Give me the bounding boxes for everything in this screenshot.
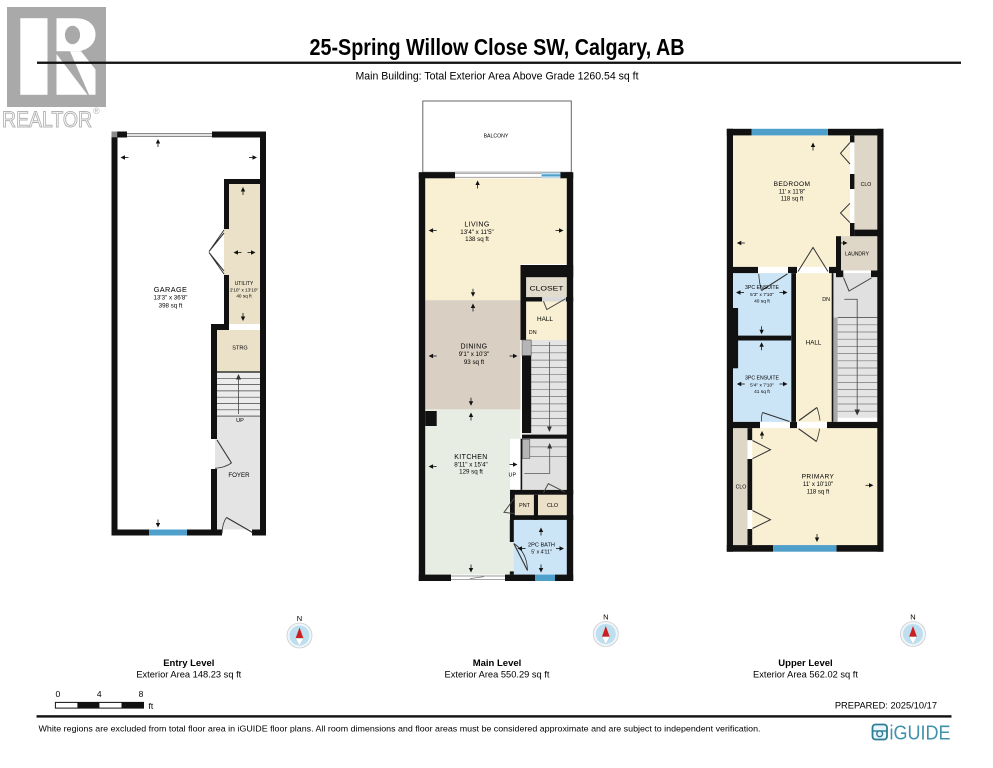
svg-text:UP: UP xyxy=(236,418,244,424)
svg-text:129 sq ft: 129 sq ft xyxy=(459,469,483,476)
svg-text:DN: DN xyxy=(822,297,830,303)
svg-text:40 sq ft: 40 sq ft xyxy=(236,294,252,299)
svg-text:5'3" x 7'10": 5'3" x 7'10" xyxy=(750,292,774,298)
svg-text:CLO: CLO xyxy=(861,182,872,188)
svg-text:13'3" x 36'8": 13'3" x 36'8" xyxy=(154,295,188,302)
svg-text:GARAGE: GARAGE xyxy=(154,285,188,294)
svg-text:2'10" x 13'10": 2'10" x 13'10" xyxy=(230,287,259,292)
svg-text:118 sq ft: 118 sq ft xyxy=(781,197,804,203)
svg-text:11' x 11'8": 11' x 11'8" xyxy=(779,189,806,195)
svg-text:3PC ENSUITE: 3PC ENSUITE xyxy=(745,285,780,291)
svg-text:Main Level: Main Level xyxy=(473,658,522,669)
svg-text:FOYER: FOYER xyxy=(228,472,250,479)
svg-text:8'11" x 15'4": 8'11" x 15'4" xyxy=(454,461,487,468)
svg-text:11' x 10'10": 11' x 10'10" xyxy=(803,482,833,488)
svg-text:41 sq ft: 41 sq ft xyxy=(754,389,770,395)
svg-text:2PC BATH: 2PC BATH xyxy=(528,543,555,549)
svg-text:BALCONY: BALCONY xyxy=(484,134,509,140)
svg-text:5' x 4'11": 5' x 4'11" xyxy=(531,549,552,555)
svg-text:93 sq ft: 93 sq ft xyxy=(464,359,485,366)
svg-text:iGUIDE: iGUIDE xyxy=(890,723,951,745)
svg-text:Entry Level: Entry Level xyxy=(163,658,214,669)
svg-text:40 sq ft: 40 sq ft xyxy=(754,299,770,305)
svg-text:KITCHEN: KITCHEN xyxy=(454,454,488,461)
svg-text:CLO: CLO xyxy=(547,503,558,509)
svg-text:White regions are excluded fro: White regions are excluded from total fl… xyxy=(39,724,761,734)
svg-text:Upper Level: Upper Level xyxy=(778,658,832,669)
svg-text:LIVING: LIVING xyxy=(464,222,489,229)
svg-text:PNT: PNT xyxy=(519,503,530,509)
svg-text:138 sq ft: 138 sq ft xyxy=(465,236,489,243)
svg-text:CLOSET: CLOSET xyxy=(530,286,564,293)
svg-text:HALL: HALL xyxy=(537,316,553,323)
svg-text:UTILITY: UTILITY xyxy=(235,281,254,287)
svg-text:REALTOR: REALTOR xyxy=(2,107,92,132)
svg-text:LAUNDRY: LAUNDRY xyxy=(845,252,869,258)
svg-text:DINING: DINING xyxy=(461,344,488,351)
svg-text:UP: UP xyxy=(509,472,517,478)
svg-text:9'1" x 10'3": 9'1" x 10'3" xyxy=(459,351,490,358)
svg-text:Main Building: Total Exterior: Main Building: Total Exterior Area Above… xyxy=(356,71,639,83)
svg-text:Exterior Area 562.02 sq ft: Exterior Area 562.02 sq ft xyxy=(753,670,858,680)
svg-text:STRG: STRG xyxy=(232,346,248,352)
svg-text:ft: ft xyxy=(149,701,154,711)
svg-text:CLO: CLO xyxy=(736,485,747,491)
svg-text:13'4" x 11'5": 13'4" x 11'5" xyxy=(460,229,493,236)
svg-text:N: N xyxy=(910,613,915,622)
svg-text:N: N xyxy=(603,613,608,622)
svg-text:Exterior Area 550.29 sq ft: Exterior Area 550.29 sq ft xyxy=(445,670,550,680)
svg-text:HALL: HALL xyxy=(806,340,822,347)
svg-text:5'4" x 7'10": 5'4" x 7'10" xyxy=(750,382,774,388)
svg-text:25-Spring Willow Close SW, Cal: 25-Spring Willow Close SW, Calgary, AB xyxy=(310,34,685,60)
svg-text:DN: DN xyxy=(529,330,537,336)
svg-text:®: ® xyxy=(93,106,100,116)
svg-text:PRIMARY: PRIMARY xyxy=(802,474,835,481)
svg-text:398 sq ft: 398 sq ft xyxy=(159,302,183,309)
svg-text:4: 4 xyxy=(97,689,102,699)
svg-text:BEDROOM: BEDROOM xyxy=(774,181,811,188)
svg-text:Exterior Area 148.23 sq ft: Exterior Area 148.23 sq ft xyxy=(136,670,241,680)
svg-text:0: 0 xyxy=(56,689,61,699)
svg-text:118 sq ft: 118 sq ft xyxy=(807,489,830,495)
svg-text:8: 8 xyxy=(139,689,144,699)
svg-text:N: N xyxy=(297,614,302,623)
svg-text:3PC ENSUITE: 3PC ENSUITE xyxy=(745,376,780,382)
svg-text:PREPARED: 2025/10/17: PREPARED: 2025/10/17 xyxy=(835,701,937,711)
